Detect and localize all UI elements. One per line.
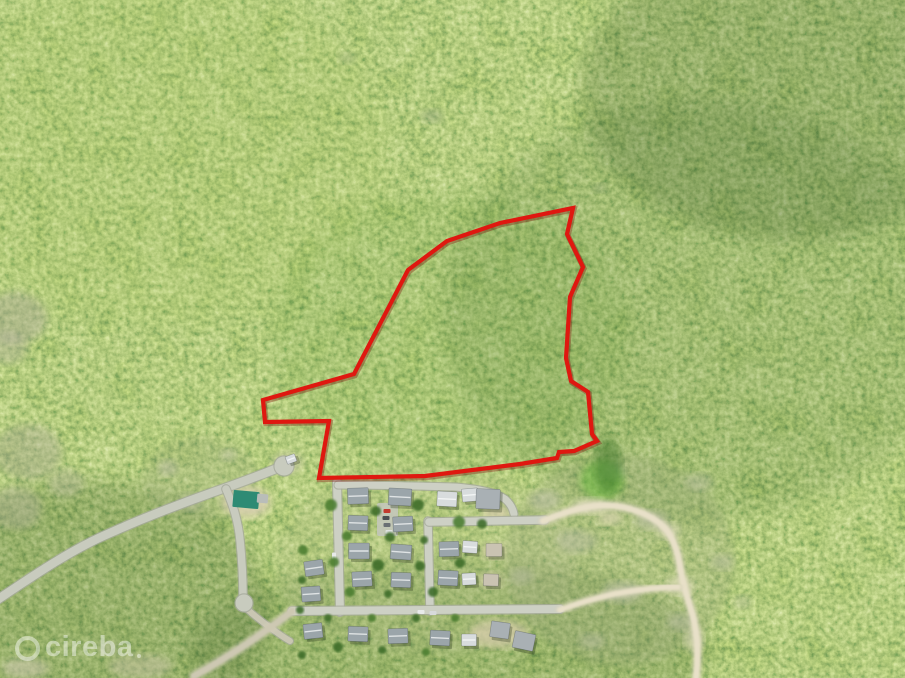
tree xyxy=(329,557,339,567)
house xyxy=(462,634,480,649)
tree xyxy=(384,590,392,598)
house xyxy=(439,541,462,560)
ground-patch xyxy=(421,109,443,123)
tree xyxy=(412,614,420,622)
house xyxy=(390,544,415,564)
roof-ridge xyxy=(438,499,456,500)
roof-ridge xyxy=(431,638,449,639)
ground-patch xyxy=(686,473,714,491)
tree xyxy=(333,642,343,652)
tree xyxy=(368,614,376,622)
house xyxy=(348,626,371,645)
tree xyxy=(385,532,395,542)
car xyxy=(383,516,390,520)
car xyxy=(430,611,437,615)
gray-annex xyxy=(257,494,269,504)
tree xyxy=(342,531,352,541)
roof-ridge xyxy=(389,636,407,637)
house-roof xyxy=(476,489,501,510)
tree xyxy=(325,499,337,511)
house xyxy=(483,574,501,590)
house xyxy=(301,586,324,605)
car xyxy=(384,523,391,527)
ground-patch xyxy=(732,595,752,609)
tree xyxy=(378,646,386,654)
ground-patch xyxy=(2,658,50,678)
roof-ridge xyxy=(439,578,457,579)
tree xyxy=(371,506,381,516)
aerial-photo: cireba xyxy=(0,0,905,678)
house-roof xyxy=(486,544,502,557)
tree xyxy=(296,606,304,614)
culdesac xyxy=(236,595,253,612)
house xyxy=(436,491,459,510)
house-roof xyxy=(483,574,498,587)
ground-patch xyxy=(220,449,236,461)
tree xyxy=(345,587,355,597)
house xyxy=(486,544,505,560)
tree xyxy=(324,614,332,622)
house-roof xyxy=(489,621,510,639)
car xyxy=(418,610,425,614)
roof-ridge xyxy=(349,523,367,524)
house xyxy=(388,628,411,647)
tree xyxy=(422,648,430,656)
tree xyxy=(298,576,306,584)
dev-road-vertical-2 xyxy=(428,521,430,611)
ground-patch xyxy=(710,554,734,570)
teal-roof-building xyxy=(232,490,259,509)
house xyxy=(348,515,371,534)
tree xyxy=(415,561,425,571)
tree xyxy=(477,519,487,529)
ground-patch xyxy=(529,490,561,510)
house xyxy=(349,543,373,562)
house xyxy=(388,488,415,509)
ground-patch xyxy=(579,633,605,649)
roof-ridge xyxy=(464,547,477,548)
house xyxy=(462,540,481,556)
roof-ridge xyxy=(463,579,475,580)
house xyxy=(476,489,503,513)
tree xyxy=(428,587,438,597)
tree xyxy=(412,499,424,511)
tree xyxy=(298,651,306,659)
tree xyxy=(420,536,428,544)
house xyxy=(489,621,513,643)
roof-ridge xyxy=(394,524,412,525)
roof-ridge xyxy=(392,580,410,581)
ground-patch xyxy=(48,468,84,496)
house xyxy=(429,630,452,649)
house xyxy=(347,488,371,508)
tree xyxy=(451,614,459,622)
dev-road-vertical-1 xyxy=(337,482,340,612)
ground-patch xyxy=(158,460,178,476)
dev-road-bottom xyxy=(292,609,560,611)
ground-patch xyxy=(510,568,534,584)
roof-ridge xyxy=(349,496,368,497)
house xyxy=(352,571,375,590)
tree xyxy=(453,516,465,528)
car xyxy=(384,509,391,513)
dev-road-middle xyxy=(429,520,545,522)
house xyxy=(437,570,460,589)
roof-ridge xyxy=(440,549,458,550)
tree xyxy=(372,559,384,571)
ground-patch xyxy=(598,511,622,525)
ground-patch xyxy=(108,654,172,678)
roof-ridge xyxy=(353,579,371,580)
tree xyxy=(455,558,465,568)
roof-ridge xyxy=(349,634,367,635)
scene-svg xyxy=(0,0,905,678)
ground-patch xyxy=(557,529,597,553)
house xyxy=(393,516,416,535)
ground-patch xyxy=(338,52,356,64)
ground-patch xyxy=(98,641,118,655)
tree xyxy=(298,545,308,555)
ground-patch xyxy=(592,183,608,193)
house xyxy=(391,572,414,591)
canopy-tint xyxy=(270,190,630,470)
